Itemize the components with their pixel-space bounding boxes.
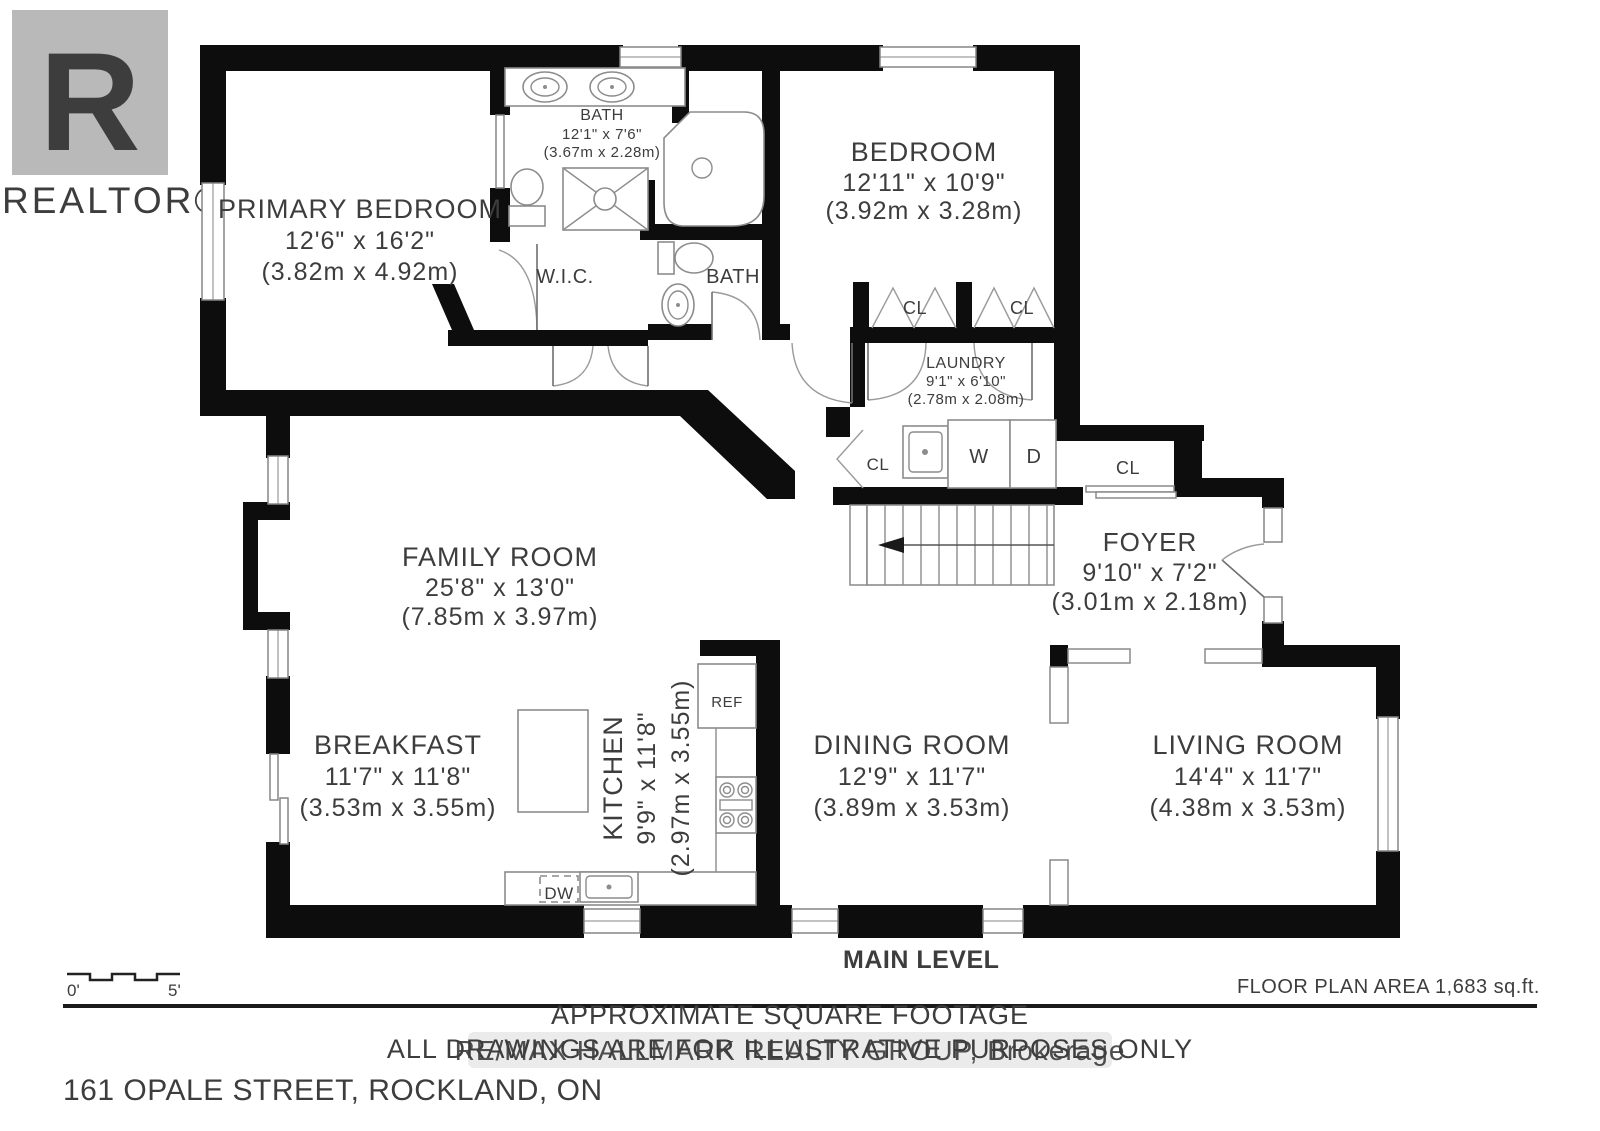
dryer-label: D [1027, 446, 1042, 468]
bathtub [664, 112, 764, 226]
kitchen-sink [580, 872, 638, 902]
level-title: MAIN LEVEL [843, 946, 999, 974]
patio-door [270, 754, 278, 800]
svg-text:BEDROOM: BEDROOM [851, 137, 998, 167]
svg-text:9'1" x 6'10": 9'1" x 6'10" [926, 373, 1006, 390]
svg-text:12'9" x 11'7": 12'9" x 11'7" [838, 763, 986, 791]
room-labels: PRIMARY BEDROOM 12'6" x 16'2" (3.82m x 4… [218, 107, 1347, 903]
fridge-label: REF [711, 694, 743, 711]
room-label-breakfast: BREAKFAST 11'7" x 11'8" (3.53m x 3.55m) [299, 730, 496, 822]
floor-plan-area: FLOOR PLAN AREA 1,683 sq.ft. [1237, 976, 1540, 998]
room-label-bath-main: BATH 12'1" x 7'6" (3.67m x 2.28m) [544, 107, 661, 161]
svg-text:FOYER: FOYER [1103, 527, 1198, 557]
svg-text:BATH: BATH [580, 107, 623, 124]
room-label-dining-room: DINING ROOM 12'9" x 11'7" (3.89m x 3.53m… [813, 730, 1010, 822]
closet-label: CL [903, 298, 927, 318]
svg-text:(3.92m x 3.28m): (3.92m x 3.28m) [825, 197, 1022, 225]
svg-text:(2.97m x 3.55m): (2.97m x 3.55m) [667, 679, 695, 876]
realtor-logo-text: REALTOR® [2, 180, 225, 221]
scale-bar: 0' 5' [67, 974, 181, 1000]
svg-text:9'10" x 7'2": 9'10" x 7'2" [1082, 559, 1217, 587]
closet-label: CL [1116, 458, 1140, 478]
svg-text:(4.38m x 3.53m): (4.38m x 3.53m) [1149, 794, 1346, 822]
svg-text:9'9" x 11'8": 9'9" x 11'8" [633, 711, 661, 844]
svg-text:14'4" x 11'7": 14'4" x 11'7" [1174, 763, 1322, 791]
svg-text:KITCHEN: KITCHEN [598, 715, 628, 841]
svg-text:(3.01m x 2.18m): (3.01m x 2.18m) [1051, 588, 1248, 616]
floor-plan-page: R REALTOR® [0, 0, 1600, 1131]
svg-text:25'8" x 13'0": 25'8" x 13'0" [425, 574, 575, 602]
svg-text:12'11" x 10'9": 12'11" x 10'9" [842, 169, 1005, 197]
closet-bypass-door [1086, 486, 1174, 492]
svg-text:(7.85m x 3.97m): (7.85m x 3.97m) [401, 603, 598, 631]
disclaimer-line-2: ALL DRAWINGS ARE FOR ILLUSTRATIVE PURPOS… [387, 1034, 1193, 1064]
sidelight-top [1264, 508, 1282, 542]
svg-text:(3.67m x 2.28m): (3.67m x 2.28m) [544, 144, 661, 161]
room-label-bath-second: BATH [706, 266, 760, 288]
sidelight-bottom [1264, 597, 1282, 623]
kitchen-island [518, 710, 588, 812]
svg-text:LIVING ROOM: LIVING ROOM [1152, 730, 1343, 760]
property-address: 161 OPALE STREET, ROCKLAND, ON [63, 1074, 603, 1107]
disclaimer-line-1: APPROXIMATE SQUARE FOOTAGE [551, 1000, 1029, 1030]
toilet-icon [658, 242, 674, 274]
footer: MAIN LEVEL FLOOR PLAN AREA 1,683 sq.ft. … [63, 946, 1540, 1107]
room-label-laundry: LAUNDRY 9'1" x 6'10" (2.78m x 2.08m) [908, 355, 1025, 408]
floor-plan-svg: R REALTOR® [0, 0, 1600, 1131]
svg-text:PRIMARY BEDROOM: PRIMARY BEDROOM [218, 194, 502, 224]
toilet-icon [511, 169, 543, 205]
svg-text:12'1" x 7'6": 12'1" x 7'6" [562, 126, 642, 143]
washer-label: W [969, 446, 988, 468]
room-label-bedroom: BEDROOM 12'11" x 10'9" (3.92m x 3.28m) [825, 137, 1022, 225]
svg-text:11'7" x 11'8": 11'7" x 11'8" [325, 763, 471, 791]
patio-door [280, 798, 288, 844]
svg-text:12'6" x 16'2": 12'6" x 16'2" [285, 227, 435, 255]
room-label-living-room: LIVING ROOM 14'4" x 11'7" (4.38m x 3.53m… [1149, 730, 1346, 822]
realtor-logo-letter: R [39, 23, 140, 180]
closet-label: CL [1010, 298, 1034, 318]
svg-text:FAMILY ROOM: FAMILY ROOM [402, 542, 598, 572]
closet-label: CL [867, 455, 890, 474]
scale-end: 5' [168, 981, 181, 1000]
scale-start: 0' [67, 981, 80, 1000]
svg-text:(2.78m x 2.08m): (2.78m x 2.08m) [908, 391, 1025, 408]
shower [563, 168, 648, 230]
door-leaf [496, 115, 504, 188]
closet-bypass-door [1096, 492, 1176, 498]
room-label-wic: W.I.C. [536, 266, 593, 288]
room-label-kitchen: KITCHEN 9'9" x 11'8" (2.97m x 3.55m) [598, 679, 695, 876]
room-label-primary-bedroom: PRIMARY BEDROOM 12'6" x 16'2" (3.82m x 4… [218, 194, 502, 286]
room-label-foyer: FOYER 9'10" x 7'2" (3.01m x 2.18m) [1051, 527, 1248, 616]
svg-text:(3.53m x 3.55m): (3.53m x 3.55m) [299, 794, 496, 822]
svg-text:BREAKFAST: BREAKFAST [314, 730, 482, 760]
dishwasher-label: DW [544, 884, 573, 903]
svg-text:LAUNDRY: LAUNDRY [926, 355, 1006, 372]
svg-text:DINING ROOM: DINING ROOM [814, 730, 1011, 760]
fireplace [258, 520, 290, 612]
room-label-family-room: FAMILY ROOM 25'8" x 13'0" (7.85m x 3.97m… [401, 542, 598, 631]
svg-text:(3.89m x 3.53m): (3.89m x 3.53m) [813, 794, 1010, 822]
stove [716, 777, 756, 833]
svg-text:(3.82m x 4.92m): (3.82m x 4.92m) [261, 258, 458, 286]
realtor-logo: R REALTOR® [2, 10, 225, 221]
staircase [867, 505, 1054, 585]
